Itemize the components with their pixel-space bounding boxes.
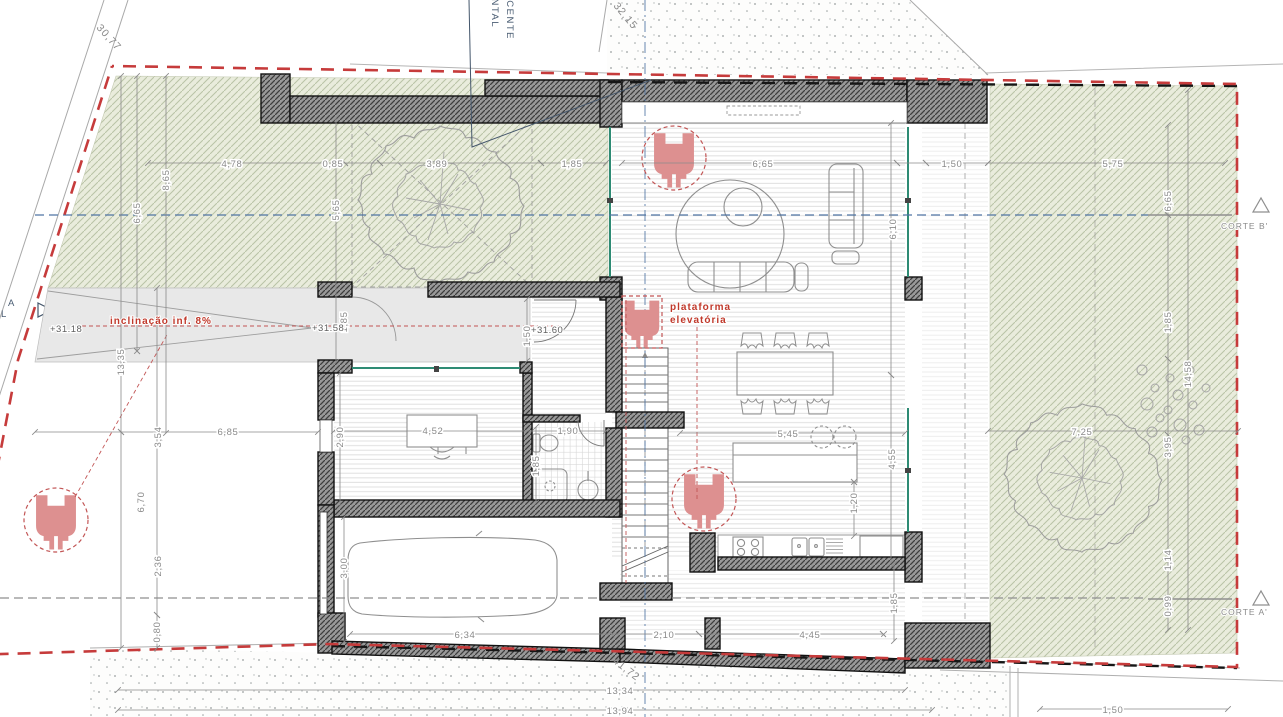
dim-label: 13,35: [116, 349, 127, 376]
adjacent-frontage-label2: ADJACENTE: [504, 0, 515, 40]
dim-label: 1,85: [531, 456, 542, 477]
dim-label: 4,78: [222, 159, 243, 170]
dim-label: 1,90: [558, 426, 579, 437]
street-pavement-top: [607, 0, 988, 75]
dim-label: 13,94: [607, 706, 634, 717]
floor-plan-canvas: 4,78 0,85 3,89 1,85 6,65 1,50 5,75 6,65 …: [0, 0, 1283, 717]
lift-note-line2: elevatória: [670, 315, 727, 326]
wall-office-garage: [334, 500, 620, 517]
section-label-B: CORTE B': [1221, 221, 1268, 231]
dim-label: 5,65: [331, 200, 342, 221]
dim-label: 2,90: [335, 427, 346, 448]
wall-front-block: [261, 74, 290, 123]
dim-label: 4,55: [887, 449, 898, 470]
dim-label: 6,65: [1163, 191, 1174, 212]
wall-entry-north: [428, 282, 620, 297]
section-marker-A: [1253, 591, 1269, 605]
garage-door: [320, 512, 327, 614]
dim-label: 1,85: [889, 593, 900, 614]
dim-label: 3,54: [153, 427, 164, 448]
dim-label: 1,20: [849, 493, 860, 514]
dim-label: 6,65: [753, 159, 774, 170]
wall-hall-office: [523, 373, 532, 505]
dim-label: 5,75: [1103, 159, 1124, 170]
kitchen-island: [733, 443, 857, 482]
dim-label: 3,95: [1163, 437, 1174, 458]
wall-living-nw: [600, 80, 622, 127]
east-deck-strip: [922, 123, 988, 623]
rear-garden: [990, 84, 1237, 658]
kitchen-counter: [718, 535, 905, 559]
vent-dashed: [727, 106, 800, 115]
dim-label: 6,70: [136, 492, 147, 513]
wall-kitchen-south: [718, 557, 905, 570]
edge-text-l: L: [1, 309, 8, 320]
dim-label: 8,65: [161, 170, 172, 191]
dim-label: 13,34: [607, 686, 634, 697]
level-marker: +31.60: [531, 325, 563, 336]
dim-label: 0,99: [1163, 596, 1174, 617]
dim-label: 14,58: [1183, 361, 1194, 388]
edge-text-a: A: [8, 298, 16, 309]
wall-stair-west: [606, 297, 622, 412]
dim-label: 3,89: [427, 159, 448, 170]
lift-note-line1: plataforma: [670, 302, 731, 313]
dim-label: 6,65: [132, 203, 143, 224]
dim-label: 4,52: [423, 426, 444, 437]
dim-label: 1,50: [1103, 705, 1124, 716]
dim-label: 2,10: [654, 630, 675, 641]
dim-label: 1,50: [942, 159, 963, 170]
dim-label: 5,45: [778, 429, 799, 440]
dim-label: 7,25: [1072, 427, 1093, 438]
wall-living-ne: [907, 80, 987, 123]
adjacent-frontage-label1: FRONTAL: [489, 0, 500, 28]
dim-label: 3,00: [339, 558, 350, 579]
level-marker: +31.18: [50, 324, 82, 335]
dim-label: 6,34: [455, 630, 476, 641]
dim-label: 0,85: [323, 159, 344, 170]
dim-label: 0,80: [152, 622, 163, 643]
dim-label: 2,36: [153, 556, 164, 577]
section-marker-B: [1253, 198, 1269, 212]
dim-label: 6,10: [888, 219, 899, 240]
level-marker: +31.58: [312, 323, 344, 334]
wall-bath-north: [523, 415, 580, 422]
office-west-window: [320, 420, 332, 452]
dim-label: 4,45: [800, 630, 821, 641]
dim-label: 6,85: [218, 427, 239, 438]
entry-hall-floor: [532, 297, 606, 415]
ramp-slope-note: inclinação inf. 8%: [110, 316, 212, 327]
section-label-A: CORTE A': [1221, 607, 1268, 617]
wall-front-band: [290, 96, 608, 123]
dim-label: 1,14: [1163, 550, 1174, 571]
dim-label: 1,85: [1163, 312, 1174, 333]
dim-label: 1,85: [562, 159, 583, 170]
floor-plan-sheet: 4,78 0,85 3,89 1,85 6,65 1,50 5,75 6,65 …: [0, 0, 1283, 717]
car: [348, 537, 557, 617]
